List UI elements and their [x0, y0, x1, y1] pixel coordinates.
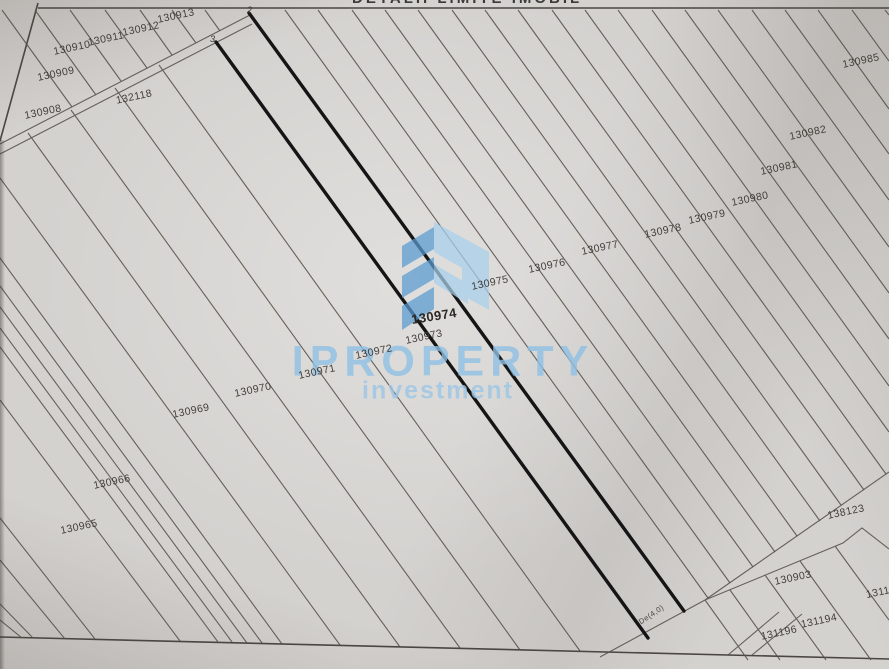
parcel-label-130965: 130965	[59, 517, 98, 537]
vertex-label-3: 3	[210, 34, 215, 44]
parcel-label-130912: 130912	[121, 19, 160, 39]
parcel-label-130974: 130974	[410, 305, 458, 327]
parcel-label-130977: 130977	[580, 238, 619, 258]
parcel-label-130980: 130980	[730, 189, 769, 209]
parcel-label-130978: 130978	[643, 221, 682, 241]
parcel-label-130982: 130982	[788, 123, 827, 143]
parcel-label-138123: 138123	[826, 502, 865, 522]
parcel-label-131196: 131196	[760, 623, 798, 642]
parcel-label-130910: 130910	[52, 38, 91, 58]
parcel-label-130969: 130969	[171, 401, 210, 421]
cadastral-plan-photo: DETALII LIMITE IMOBIL	[0, 0, 889, 669]
parcel-label-130972: 130972	[354, 342, 393, 362]
parcel-label-130979: 130979	[687, 207, 726, 227]
parcel-label-130971: 130971	[297, 362, 336, 382]
parcel-labels-layer: 1309131309121309111309101309091309081321…	[0, 0, 889, 669]
paper-edge-shadow	[0, 140, 5, 669]
parcel-label-130908: 130908	[23, 102, 62, 122]
parcel-label-130973: 130973	[404, 327, 443, 347]
parcel-label-130985: 130985	[841, 51, 880, 71]
parcel-label-130981: 130981	[759, 158, 798, 178]
vertex-label-2: 2	[247, 5, 252, 15]
parcel-label-130913: 130913	[156, 6, 195, 26]
parcel-label-131194: 131194	[800, 611, 838, 630]
parcel-label-130909: 130909	[36, 64, 75, 84]
parcel-label-130966: 130966	[92, 472, 131, 492]
parcel-label-130975: 130975	[470, 273, 509, 293]
parcel-label-130903: 130903	[773, 568, 812, 588]
parcel-label-130970: 130970	[233, 380, 272, 400]
parcel-label-13117: 13117	[865, 583, 889, 601]
parcel-label-130976: 130976	[527, 256, 566, 276]
parcel-label-130911: 130911	[87, 29, 125, 48]
parcel-label-132118: 132118	[115, 87, 153, 106]
